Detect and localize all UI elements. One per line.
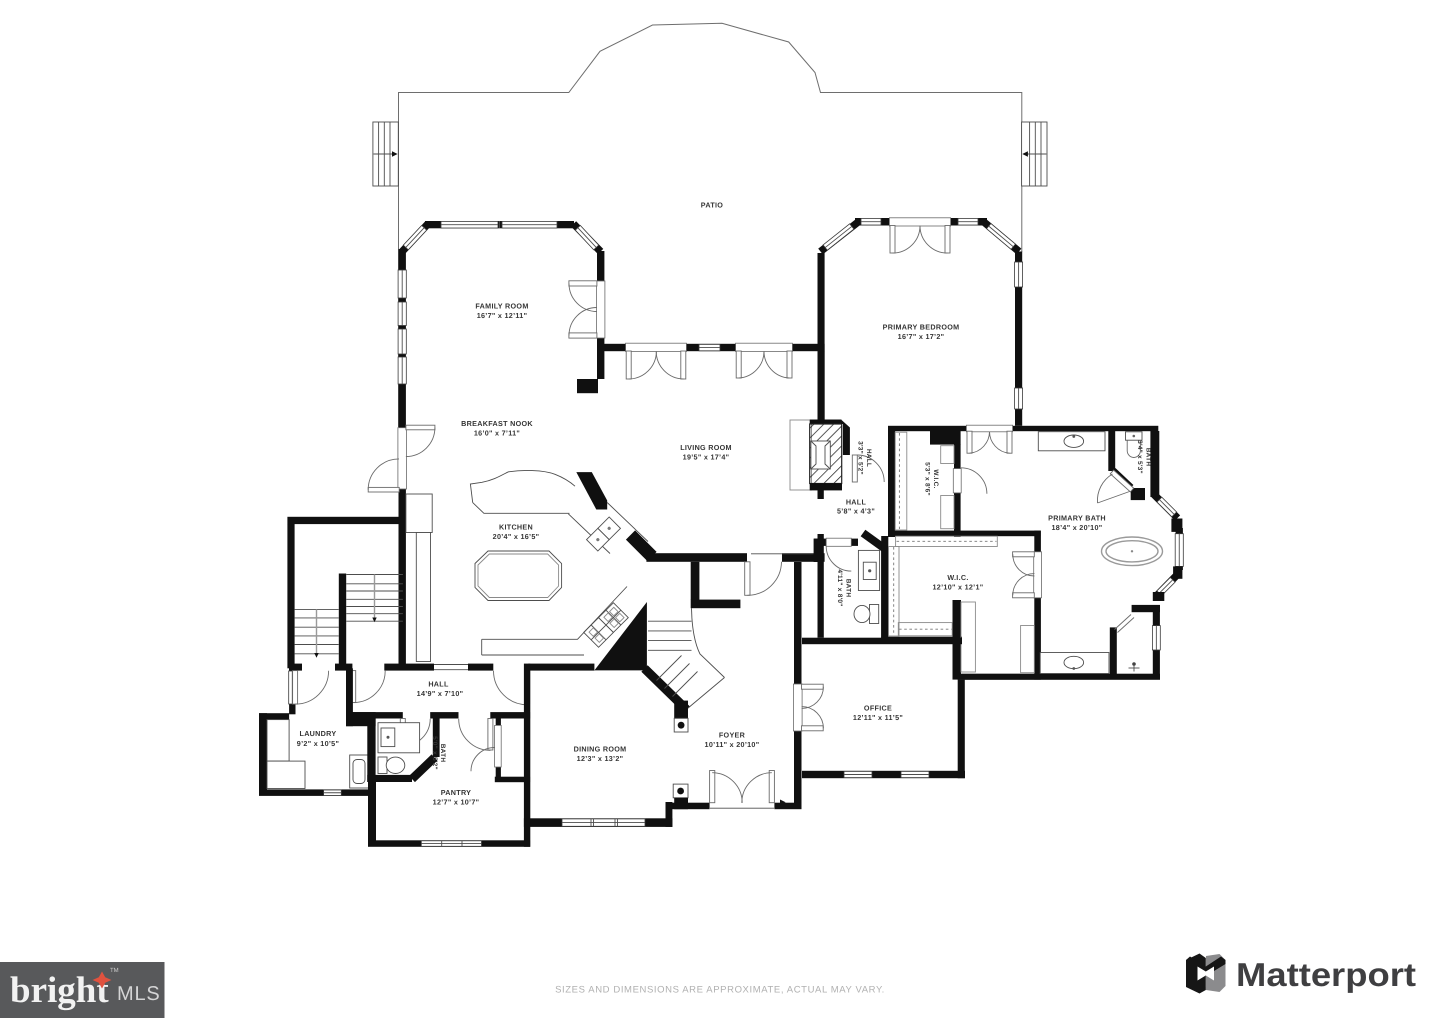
- svg-text:LIVING ROOM: LIVING ROOM: [680, 443, 732, 452]
- svg-text:BREAKFAST NOOK: BREAKFAST NOOK: [461, 419, 533, 428]
- svg-text:10’11" x 20’10": 10’11" x 20’10": [705, 740, 760, 749]
- svg-text:18’4" x 20’10": 18’4" x 20’10": [1052, 523, 1103, 532]
- svg-text:OFFICE: OFFICE: [864, 704, 892, 713]
- svg-text:LAUNDRY: LAUNDRY: [300, 729, 337, 738]
- svg-text:14’9" x 7’10": 14’9" x 7’10": [417, 689, 464, 698]
- svg-text:FAMILY ROOM: FAMILY ROOM: [475, 302, 528, 311]
- svg-text:SIZES AND DIMENSIONS ARE APPRO: SIZES AND DIMENSIONS ARE APPROXIMATE, AC…: [555, 985, 885, 996]
- svg-text:3'3" x 5'2": 3'3" x 5'2": [857, 441, 864, 475]
- svg-text:HALL: HALL: [846, 498, 867, 507]
- svg-text:Matterport: Matterport: [1236, 956, 1416, 993]
- svg-text:5’8" x 4’3": 5’8" x 4’3": [837, 507, 875, 516]
- svg-text:5'3" x 8'6": 5'3" x 8'6": [924, 462, 931, 496]
- svg-text:BATH: BATH: [439, 744, 446, 763]
- svg-text:PRIMARY BEDROOM: PRIMARY BEDROOM: [883, 323, 960, 332]
- svg-text:W.I.C.: W.I.C.: [947, 573, 968, 582]
- svg-text:12’11" x 11’5": 12’11" x 11’5": [853, 713, 903, 722]
- svg-text:W.I.C.: W.I.C.: [932, 469, 939, 488]
- svg-text:9’2" x 10’5": 9’2" x 10’5": [297, 739, 339, 748]
- svg-text:3'4" x 5'3": 3'4" x 5'3": [1136, 440, 1143, 474]
- svg-text:PATIO: PATIO: [701, 201, 724, 210]
- svg-text:12’7" x 10’7": 12’7" x 10’7": [433, 798, 480, 807]
- svg-text:19’5" x 17’4": 19’5" x 17’4": [683, 453, 730, 462]
- svg-text:KITCHEN: KITCHEN: [499, 523, 533, 532]
- svg-text:BATH: BATH: [845, 579, 852, 598]
- svg-text:12’3" x 13’2": 12’3" x 13’2": [577, 754, 624, 763]
- svg-text:16’7" x 17’2": 16’7" x 17’2": [898, 332, 945, 341]
- svg-text:HALL: HALL: [428, 680, 449, 689]
- svg-text:DINING ROOM: DINING ROOM: [574, 745, 627, 754]
- svg-text:PRIMARY BATH: PRIMARY BATH: [1048, 514, 1106, 523]
- svg-text:bright: bright: [10, 970, 109, 1011]
- svg-text:MLS: MLS: [117, 983, 161, 1005]
- svg-text:HALL: HALL: [865, 449, 872, 467]
- svg-text:12’10" x 12’1": 12’10" x 12’1": [933, 583, 984, 592]
- svg-text:5'0" x 5'2": 5'0" x 5'2": [431, 736, 438, 770]
- svg-text:20’4" x 16’5": 20’4" x 16’5": [493, 532, 540, 541]
- svg-text:FOYER: FOYER: [719, 731, 746, 740]
- svg-text:PANTRY: PANTRY: [441, 788, 472, 797]
- svg-text:16’0" x 7’11": 16’0" x 7’11": [474, 429, 520, 438]
- svg-text:4'11" x 8'0": 4'11" x 8'0": [836, 569, 843, 606]
- svg-text:16’7" x 12’11": 16’7" x 12’11": [477, 311, 528, 320]
- svg-text:TM: TM: [110, 967, 119, 974]
